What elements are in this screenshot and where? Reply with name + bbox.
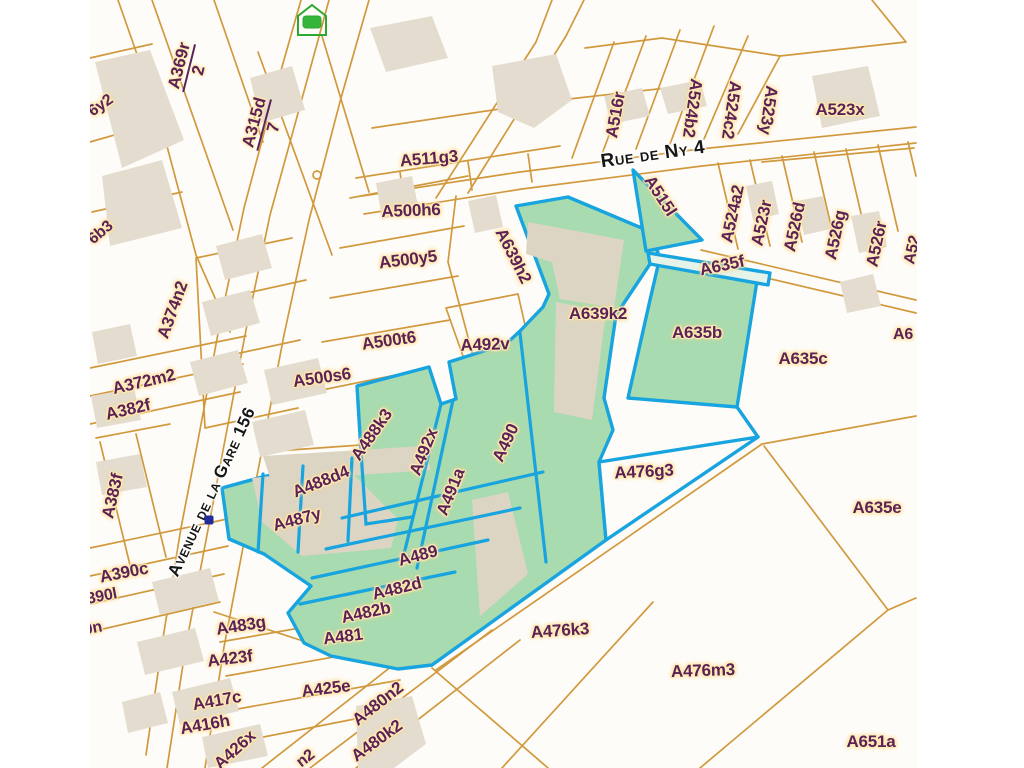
left-margin bbox=[0, 0, 90, 768]
parcel-label-A523x[interactable]: A523x bbox=[815, 100, 864, 120]
parcel-label-A635b[interactable]: A635b bbox=[672, 323, 722, 343]
map-viewport[interactable]: 6y26b3A374n2A372m2A382fA383fA390c390l0nA… bbox=[0, 0, 1024, 768]
parcel-label-A476k3[interactable]: A476k3 bbox=[530, 619, 590, 643]
right-margin bbox=[917, 0, 1024, 768]
parcel-label-A500h6[interactable]: A500h6 bbox=[381, 200, 441, 222]
parcel-label-A635c[interactable]: A635c bbox=[778, 349, 827, 369]
parcel-label-A476m3[interactable]: A476m3 bbox=[671, 660, 736, 682]
parcel-label-A635e[interactable]: A635e bbox=[852, 498, 901, 518]
parcel-label-A651a[interactable]: A651a bbox=[846, 732, 895, 752]
parcel-label-A476g3[interactable]: A476g3 bbox=[614, 460, 674, 483]
home-marker-icon[interactable] bbox=[295, 2, 329, 38]
parcel-label-A6[interactable]: A6 bbox=[893, 326, 913, 344]
selected-point-marker[interactable] bbox=[205, 516, 214, 525]
parcel-label-A639k2[interactable]: A639k2 bbox=[569, 304, 627, 324]
parcel-label-A492v[interactable]: A492v bbox=[460, 334, 510, 356]
